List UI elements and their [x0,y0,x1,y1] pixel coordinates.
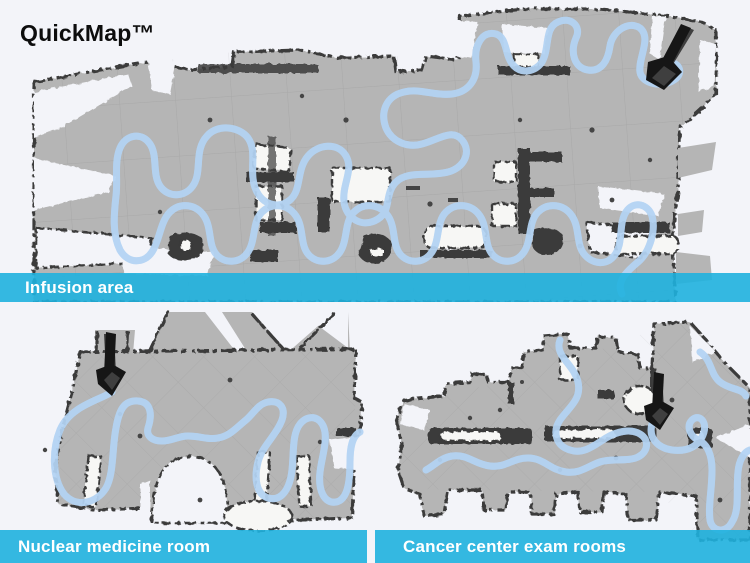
page-title: QuickMap™ [20,20,155,47]
map-label-banner: Cancer center exam rooms [375,530,750,563]
map-panel-cancer-center: Cancer center exam rooms [375,308,750,563]
map-label-banner: Infusion area [0,273,750,302]
map-label: Infusion area [0,278,133,298]
cancer-map-image [375,308,750,563]
map-label: Cancer center exam rooms [375,537,626,557]
nuclear-map-image [0,308,367,563]
map-panel-nuclear-medicine: Nuclear medicine room [0,308,367,563]
map-label: Nuclear medicine room [0,537,210,557]
map-label-banner: Nuclear medicine room [0,530,367,563]
quickmap-figure: Infusion area [0,0,750,563]
